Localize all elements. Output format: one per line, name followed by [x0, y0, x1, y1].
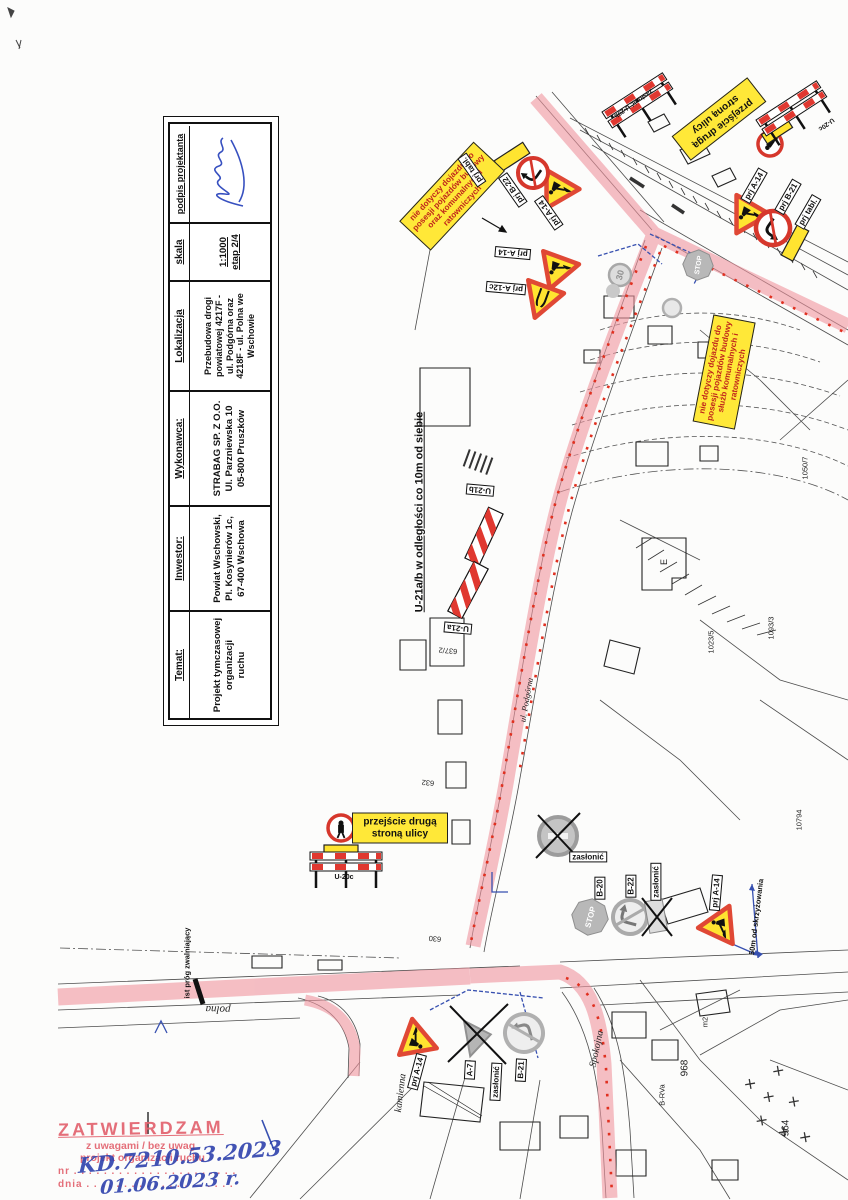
inwestor-header: Inwestor:	[170, 507, 190, 610]
title-block-table: Temat: Projekt tymczasowej organizacji r…	[168, 122, 272, 720]
temat-header: Temat:	[170, 612, 190, 718]
title-block: Temat: Projekt tymczasowej organizacji r…	[163, 116, 279, 726]
title-col-wykonawca: Wykonawca: STRABAG SP. Z O.O. Ul. Parzni…	[170, 390, 270, 505]
label-zaslonic: zasłonić	[489, 1063, 502, 1101]
cemetery-crosses	[743, 1062, 811, 1150]
skala-header: skala	[170, 224, 190, 280]
lokalizacja-header: Lokalizacja	[170, 282, 190, 390]
temat-body: Projekt tymczasowej organizacji ruchu	[190, 612, 270, 718]
podpis-header: podpis projektanta	[170, 126, 190, 222]
u21b-striped-bar	[448, 562, 488, 619]
parcel-number: 964	[780, 1120, 792, 1137]
lokalizacja-body: Przebudowa drogi powiatowej 4217F - ul. …	[190, 282, 270, 390]
parcel-number: 632	[421, 777, 434, 787]
u21a-striped-bar	[465, 507, 503, 565]
title-col-podpis: podpis projektanta	[170, 126, 270, 222]
parcel-number: 968	[679, 1060, 691, 1077]
scan-artifacts	[8, 8, 148, 1134]
podpis-body	[190, 126, 270, 222]
label-u21b: U-21b	[465, 483, 494, 497]
label-a7: A-7	[464, 1060, 476, 1079]
stop-sign-existing-2: STOP	[569, 896, 611, 938]
existing-signs: STOP 30 STOP	[464, 247, 716, 1056]
wykonawca-header: Wykonawca:	[170, 392, 190, 505]
title-col-skala: skala 1:1000 etap 2/4	[170, 222, 270, 280]
building-label: m2	[702, 1017, 711, 1027]
parcel-number: 1093/3	[768, 617, 777, 640]
b21-sign-existing	[501, 1010, 548, 1057]
label-b21: B-21	[515, 1058, 527, 1082]
speed-30-sign-existing: 30	[609, 264, 631, 286]
parcel-number: 1023/5	[708, 631, 717, 654]
title-col-lokalizacja: Lokalizacja Przebudowa drogi powiatowej …	[170, 280, 270, 390]
parcel-number: 637/2	[438, 645, 457, 655]
parcel-label: B-RVa	[659, 1084, 668, 1105]
parcel-number: 1050/7	[802, 457, 811, 480]
title-col-temat: Temat: Projekt tymczasowej organizacji r…	[170, 610, 270, 718]
parcel-number: 630	[428, 933, 441, 943]
parcel-number: 10794	[796, 810, 805, 831]
building-label: E	[659, 559, 669, 565]
a14-roadworks-sign	[696, 906, 732, 947]
title-col-inwestor: Inwestor: Powiat Wschowski, Pl. Kosynier…	[170, 505, 270, 610]
wykonawca-body: STRABAG SP. Z O.O. Ul. Parzniewska 10 05…	[190, 392, 270, 505]
black-arrows	[482, 218, 506, 232]
stamp-title: ZATWIERDZAM	[58, 1116, 276, 1141]
traffic-plan-scan: STOP 30 STOP	[0, 0, 848, 1200]
label-zaslonic: zasłonić	[650, 863, 661, 901]
label-b20: B-20	[594, 876, 605, 899]
label-zaslonic: zasłonić	[569, 851, 607, 862]
inwestor-body: Powiat Wschowski, Pl. Kosynierów 1c, 67-…	[190, 507, 270, 610]
note-cross-other-side: przejście drugą stroną ulicy	[352, 813, 448, 844]
u20b-barrier	[602, 73, 681, 141]
street-polna: polna	[205, 1002, 230, 1016]
note-speed-bump: ist próg zwalniający	[184, 928, 193, 999]
label-u21a: U-21a	[444, 621, 473, 635]
note-u21-spacing: U-21a/b w odległości co 10m od siebie	[414, 412, 427, 613]
u20c-barrier	[310, 852, 382, 888]
skala-body: 1:1000 etap 2/4	[190, 224, 270, 280]
label-u20c: U-20c	[334, 874, 353, 882]
designer-signature	[203, 134, 258, 214]
b41-no-pedestrians-sign	[328, 815, 354, 841]
buildings	[252, 114, 738, 1180]
label-b22: B-22	[625, 874, 636, 897]
